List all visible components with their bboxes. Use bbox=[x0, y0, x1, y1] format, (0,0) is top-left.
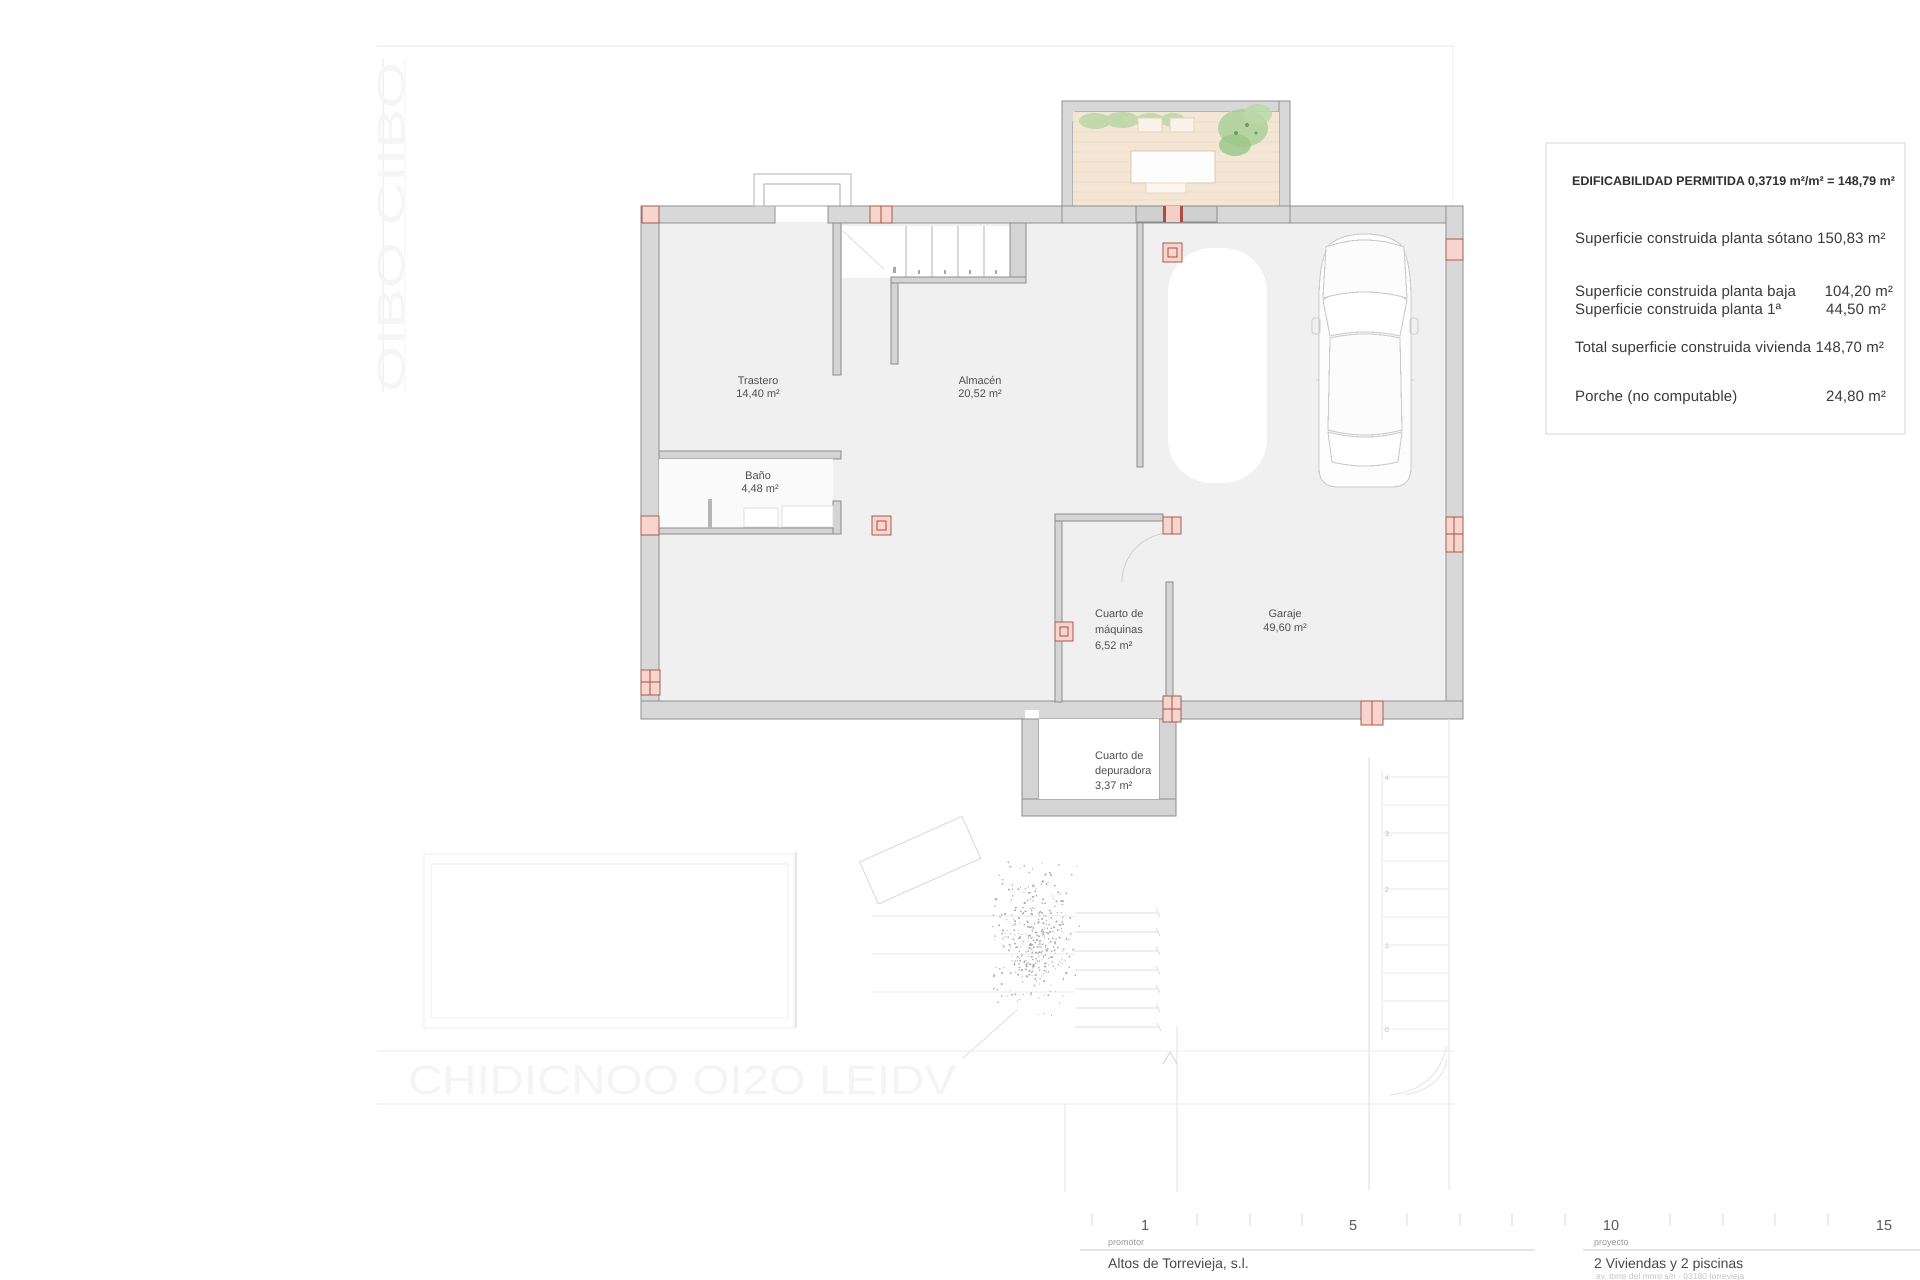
svg-text:1: 1 bbox=[1141, 1218, 1149, 1234]
svg-text:Total superficie construida vi: Total superficie construida vivienda 148… bbox=[1575, 339, 1884, 356]
svg-text:1: 1 bbox=[1385, 943, 1389, 950]
svg-text:2 Viviendas y 2 piscinas: 2 Viviendas y 2 piscinas bbox=[1594, 1255, 1743, 1271]
svg-text:44,50 m²: 44,50 m² bbox=[1826, 301, 1886, 318]
svg-text:depuradora: depuradora bbox=[1095, 765, 1152, 777]
svg-text:Superficie construida planta s: Superficie construida planta sótano 150,… bbox=[1575, 230, 1886, 247]
svg-text:14,40 m²: 14,40 m² bbox=[736, 388, 780, 400]
svg-text:3: 3 bbox=[1385, 831, 1389, 838]
svg-text:2: 2 bbox=[1385, 887, 1389, 894]
svg-text:104,20 m²: 104,20 m² bbox=[1825, 283, 1893, 300]
svg-text:4,48 m²: 4,48 m² bbox=[741, 483, 779, 495]
svg-text:Cuarto de: Cuarto de bbox=[1095, 750, 1143, 762]
svg-text:Garaje: Garaje bbox=[1268, 608, 1301, 620]
svg-text:5: 5 bbox=[1349, 1218, 1357, 1234]
svg-text:CHIDICNOO OI2O LEIDV: CHIDICNOO OI2O LEIDV bbox=[408, 1057, 957, 1103]
svg-text:Superficie construida planta b: Superficie construida planta baja bbox=[1575, 283, 1796, 300]
svg-text:4: 4 bbox=[1385, 775, 1389, 782]
svg-text:6,52 m²: 6,52 m² bbox=[1095, 640, 1133, 652]
svg-text:49,60 m²: 49,60 m² bbox=[1263, 622, 1307, 634]
svg-text:Trastero: Trastero bbox=[738, 375, 779, 387]
svg-text:15: 15 bbox=[1876, 1218, 1892, 1234]
svg-text:3,37 m²: 3,37 m² bbox=[1095, 780, 1133, 792]
svg-text:0: 0 bbox=[1385, 1027, 1389, 1034]
svg-text:OIBO CIIBO: OIBO CIIBO bbox=[371, 62, 413, 392]
svg-text:Cuarto de: Cuarto de bbox=[1095, 608, 1143, 620]
svg-text:promotor: promotor bbox=[1108, 1237, 1144, 1247]
svg-text:Altos de Torrevieja, s.l.: Altos de Torrevieja, s.l. bbox=[1108, 1255, 1249, 1271]
svg-text:Porche (no computable): Porche (no computable) bbox=[1575, 388, 1737, 405]
svg-text:24,80 m²: 24,80 m² bbox=[1826, 388, 1886, 405]
svg-text:máquinas: máquinas bbox=[1095, 624, 1143, 636]
svg-text:Almacén: Almacén bbox=[959, 375, 1002, 387]
svg-text:EDIFICABILIDAD PERMITIDA 0,371: EDIFICABILIDAD PERMITIDA 0,3719 m²/m² = … bbox=[1572, 174, 1895, 188]
svg-text:av. torre del moro s/n - 03180: av. torre del moro s/n - 03180 torreviej… bbox=[1596, 1271, 1744, 1280]
svg-text:10: 10 bbox=[1603, 1218, 1619, 1234]
svg-text:proyecto: proyecto bbox=[1594, 1237, 1629, 1247]
svg-text:Superficie construida planta 1: Superficie construida planta 1ª bbox=[1575, 301, 1782, 318]
svg-text:20,52 m²: 20,52 m² bbox=[958, 388, 1002, 400]
svg-text:Baño: Baño bbox=[745, 470, 771, 482]
